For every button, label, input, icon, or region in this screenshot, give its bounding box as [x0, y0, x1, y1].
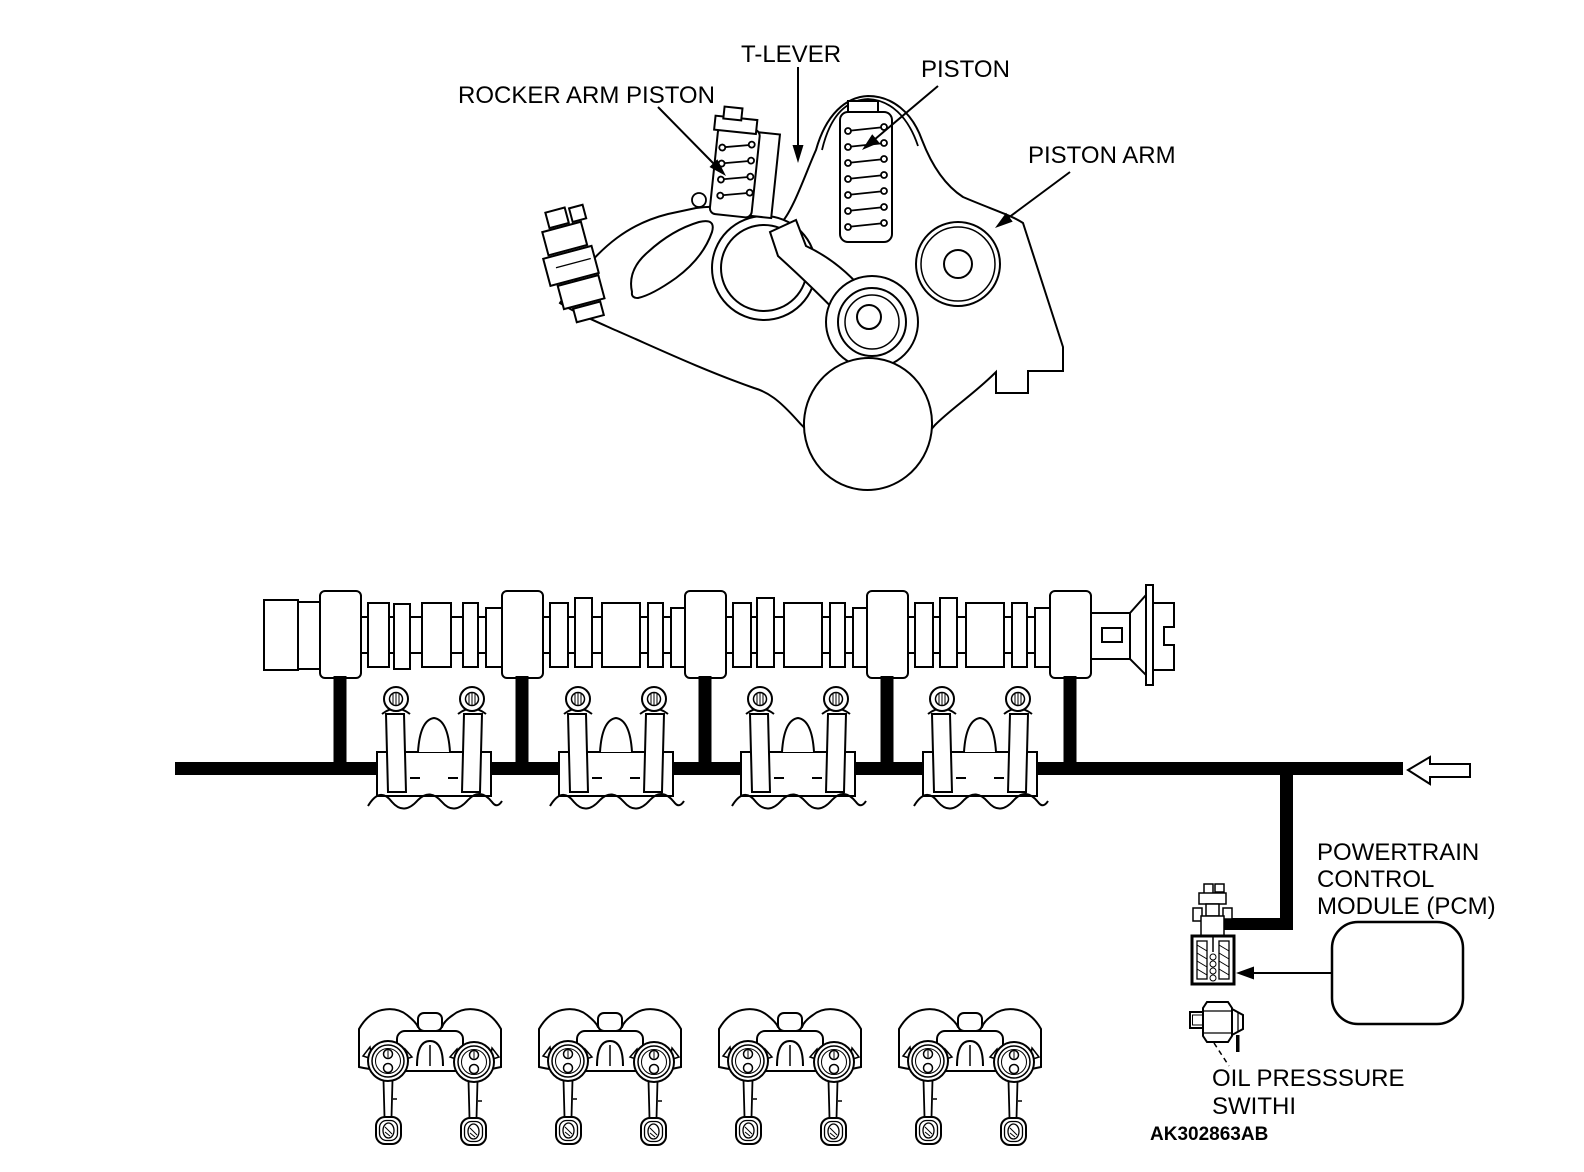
oil-line-journal-2	[516, 676, 529, 771]
leader-piston-arm	[1008, 172, 1070, 218]
oil-line-elbow	[1224, 918, 1293, 930]
oil-switch-label-line2: SWITHI	[1212, 1093, 1296, 1120]
oil-line-journal-1	[334, 676, 347, 771]
pcm-signal-arrowhead	[1236, 967, 1254, 980]
valve-bridge-assemblies	[359, 1009, 1041, 1145]
diagram-svg: ROCKER ARM PISTON T-LEVER PISTON PISTON …	[0, 0, 1584, 1172]
label-rocker-arm-piston: ROCKER ARM PISTON	[458, 82, 715, 109]
pcm-label-line2: CONTROL	[1317, 866, 1434, 893]
camshaft	[264, 585, 1174, 685]
oil-line-drop	[1280, 768, 1293, 930]
pcm: POWERTRAIN CONTROL MODULE (PCM)	[1236, 839, 1496, 1024]
oil-switch-label-line1: OIL PRESSSURE	[1212, 1065, 1405, 1092]
figure-code: AK302863AB	[1150, 1124, 1268, 1145]
pcm-box	[1332, 922, 1463, 1024]
oil-flow-arrow	[1408, 757, 1470, 784]
pcm-label-line1: POWERTRAIN	[1317, 839, 1479, 866]
oil-line-journal-3	[699, 676, 712, 771]
leader-rocker-arm-piston	[658, 107, 714, 164]
oil-line-journal-4	[881, 676, 894, 771]
arrowhead-t-lever	[793, 145, 804, 163]
label-piston-arm: PISTON ARM	[1028, 142, 1176, 169]
label-t-lever: T-LEVER	[741, 41, 841, 68]
oil-control-valve	[1192, 884, 1234, 984]
pcm-label-line3: MODULE (PCM)	[1317, 893, 1496, 920]
switch-leader	[1214, 1043, 1229, 1066]
switch-terminal	[1236, 1035, 1240, 1052]
oil-line-journal-5	[1064, 676, 1077, 771]
engine-service-diagram: ROCKER ARM PISTON T-LEVER PISTON PISTON …	[0, 0, 1584, 1172]
label-piston: PISTON	[921, 56, 1010, 83]
